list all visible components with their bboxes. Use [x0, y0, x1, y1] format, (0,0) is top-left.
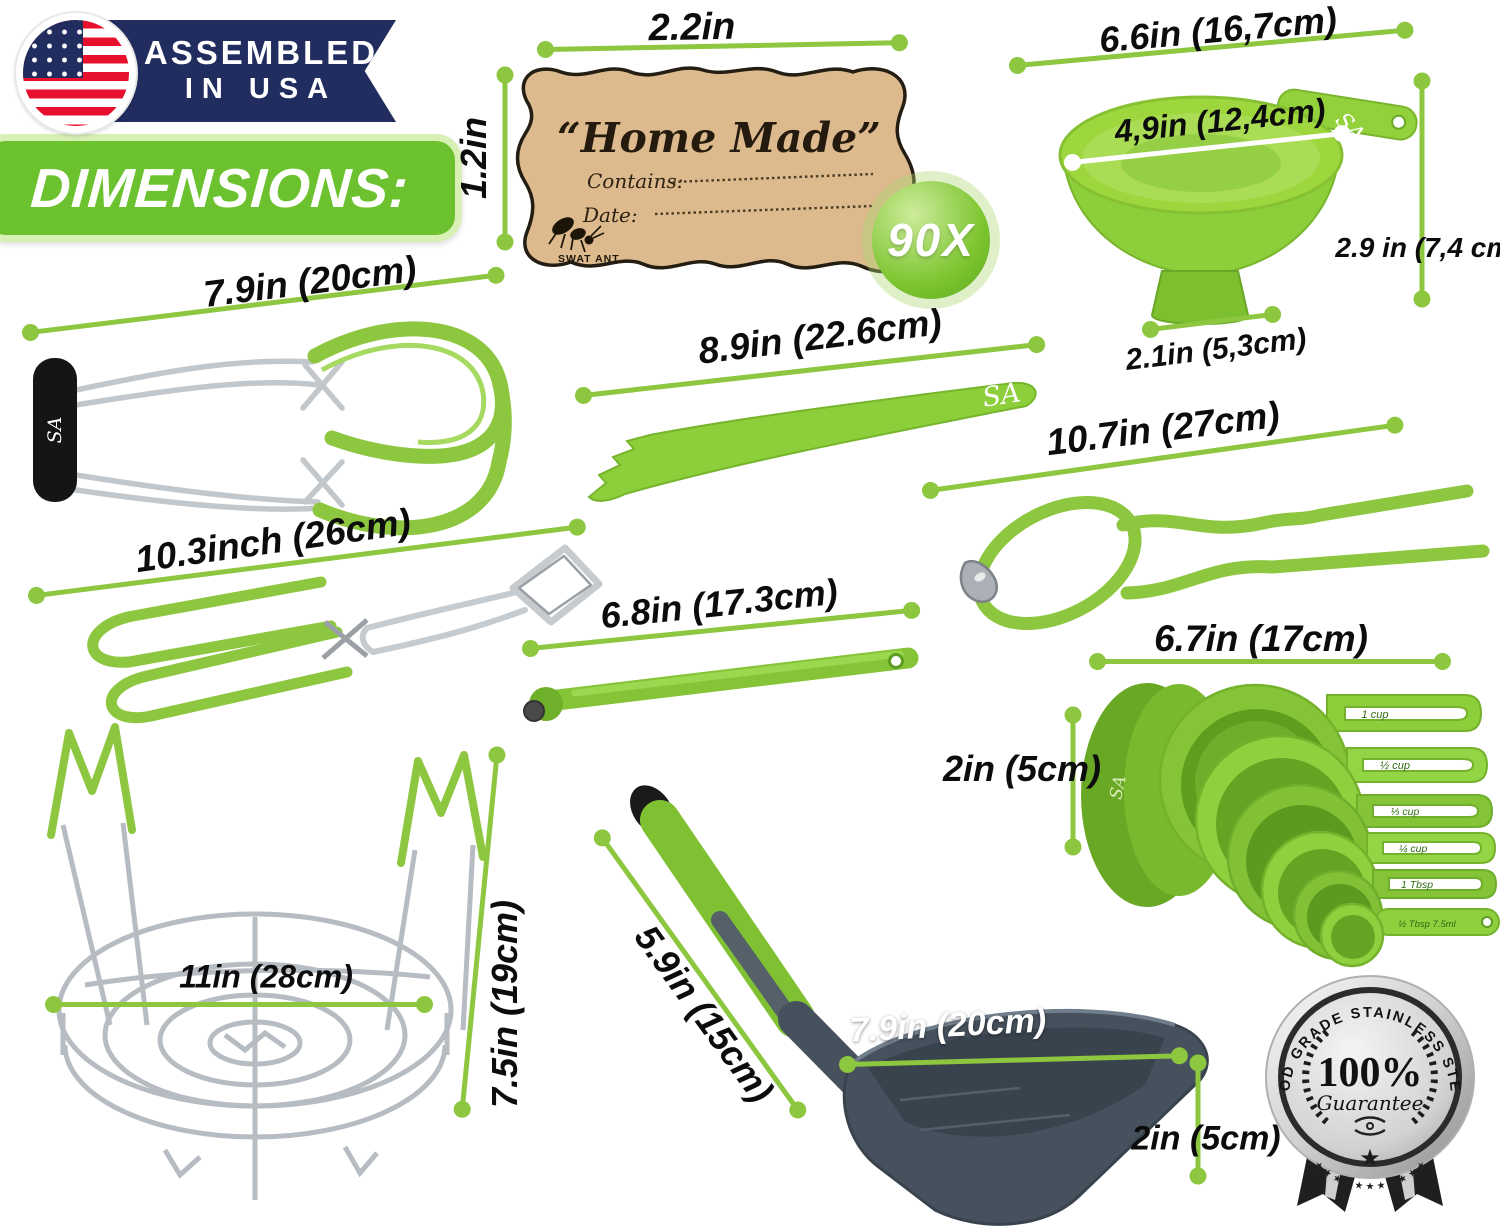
- usa-flag-icon: [16, 13, 136, 133]
- cup-size-label: ½ Tbsp 7.5ml: [1398, 919, 1456, 930]
- knife-logo: SA: [980, 377, 1022, 414]
- dimension-label: 2in (5cm): [1131, 1120, 1280, 1159]
- cup-size-label: 1 cup: [1362, 709, 1389, 721]
- dimension-label: 10.7in (27cm): [1044, 394, 1282, 464]
- dimension-label: 2.9 in (7,4 cm): [1335, 232, 1500, 264]
- dimension-label: 1.2in: [453, 117, 495, 199]
- dimension-line: [503, 75, 508, 243]
- dimension-line: [1420, 81, 1425, 300]
- label-outline: [518, 68, 915, 272]
- assembled-text-line2: IN USA: [185, 72, 337, 107]
- label-title: “Home Made”: [557, 114, 881, 162]
- guarantee-medal: FOOD GRADE STAINLESS STEEL ★ ★ ★ ★ ★ ★ ★…: [1245, 970, 1495, 1220]
- dimension-label: 6.6in (16,7cm): [1098, 0, 1339, 61]
- medal-bottom-star-icon: ★: [1359, 1145, 1381, 1172]
- jar-lifter-logo: SA: [44, 417, 66, 444]
- medal-percent-text: 100%: [1318, 1050, 1423, 1096]
- dimensions-banner: DIMENSIONS:: [0, 134, 462, 242]
- cup-size-label: ¼ cup: [1399, 843, 1428, 855]
- quantity-badge: 90X: [872, 181, 990, 299]
- dimension-label: 2in (5cm): [943, 748, 1101, 790]
- dimension-line: [53, 1002, 425, 1007]
- cup-size-label: 1 Tbsp: [1401, 879, 1433, 891]
- canning-rack-illustration: [15, 695, 625, 1215]
- dimensions-title: DIMENSIONS:: [0, 156, 411, 220]
- label-date: Date:: [582, 203, 638, 227]
- dimension-label: 7.5in (19cm): [484, 900, 526, 1108]
- dimension-label: 2.2in: [648, 6, 735, 51]
- dimension-label: 11in (28cm): [179, 959, 353, 996]
- cup-size-label: ½ cup: [1380, 760, 1410, 772]
- jar-lifter-illustration: SA: [20, 290, 530, 545]
- label-contains: Contains:: [587, 169, 683, 193]
- assembled-text-line1: ASSEMBLED: [144, 35, 378, 71]
- label-brand: SWAT ANT: [558, 253, 620, 265]
- cup-size-label: ⅓ cup: [1391, 806, 1420, 818]
- dimension-label: 6.7in (17cm): [1154, 618, 1368, 660]
- medal-guarantee-text: Guarantee: [1317, 1091, 1424, 1115]
- product-dimensions-infographic: ASSEMBLED IN USA DIMENSIONS: “Home Made”…: [0, 0, 1500, 1226]
